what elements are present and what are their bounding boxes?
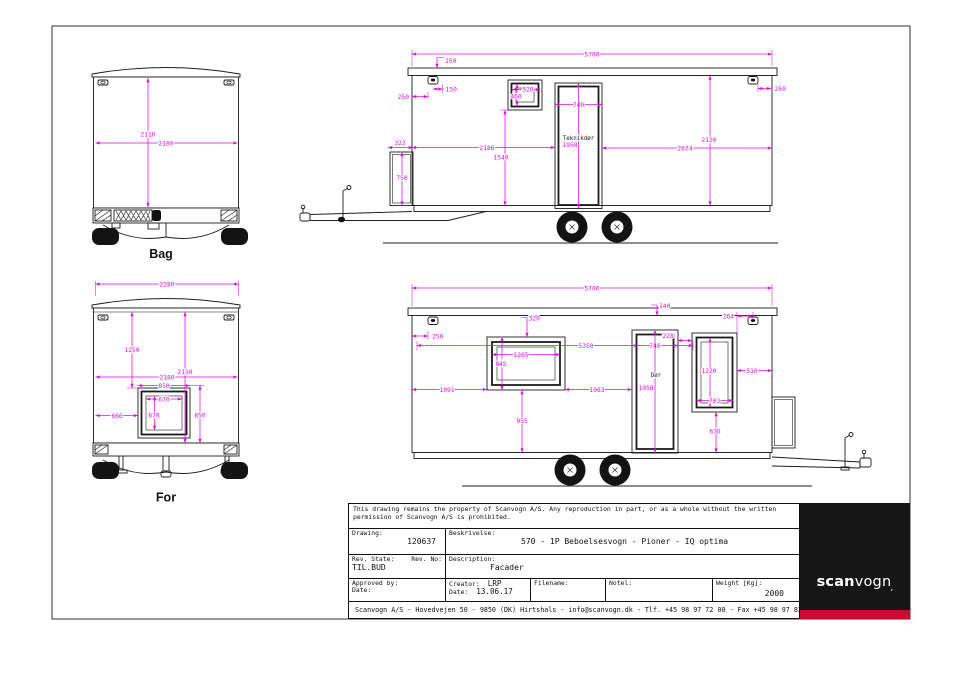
dim-sb-320: 320 <box>529 316 541 323</box>
bag-socket <box>152 210 161 221</box>
dim-st-2186: 2186 <box>479 145 494 152</box>
view-bag: 2110 2180 Bag <box>92 68 248 262</box>
drawing-number: 120637 <box>352 537 442 546</box>
dim-front-850h: 850 <box>194 413 206 420</box>
dim-sb-1063: 1063 <box>589 387 604 394</box>
dim-sb-845: 845 <box>495 361 507 368</box>
front-wheel-right <box>221 462 248 479</box>
beskrivelse-label: Beskrivelse: <box>449 530 796 537</box>
bag-step <box>148 223 159 229</box>
dim-sb-703: 703 <box>709 398 721 405</box>
scanvogn-logo: scanvogn‚ <box>800 503 910 619</box>
front-bumper <box>93 443 239 456</box>
note-cell: Notel: <box>606 579 713 601</box>
st-coupling <box>300 213 310 221</box>
creator-cell: Creator: LRP Date: 13.06.17 <box>446 579 531 601</box>
dim-sb-1091: 1091 <box>439 387 454 394</box>
sb-drawbar <box>772 457 860 468</box>
filename-cell: Filename: <box>531 579 606 601</box>
logo-part-vogn: vogn <box>855 574 892 590</box>
creator-label: Creator: <box>449 580 480 588</box>
title-block: This drawing remains the property of Sca… <box>348 503 800 619</box>
creator-date-label: Date: <box>449 588 468 596</box>
dim-front-2110: 2110 <box>177 369 192 376</box>
front-mudguards <box>103 460 229 474</box>
dim-front-670w: 670 <box>158 397 170 404</box>
rev-state-label: Rev. State: <box>352 556 394 563</box>
dim-front-overall: 2280 <box>159 282 174 289</box>
dim-sb-250: 250 <box>432 334 444 341</box>
dim-st-750: 750 <box>396 175 408 182</box>
logo-red-bar <box>800 610 910 619</box>
sb-drawbar-box <box>772 397 795 448</box>
logo-part-scan: scan <box>817 574 855 590</box>
description-value: Facader <box>490 563 796 572</box>
dim-sb-955: 955 <box>516 418 528 425</box>
weight-cell: Weight [Kg]: 2000 <box>713 579 799 601</box>
dim-st-250-front: 250 <box>398 94 410 101</box>
approved-cell: Approved by: Date: <box>349 579 446 601</box>
dim-st-250-rear: 250 <box>775 86 787 93</box>
dim-sb-1220: 1220 <box>701 368 716 375</box>
view-side-bottom: 5700 140 264 <box>408 284 871 486</box>
rev-state-value: TIL.BUD <box>352 563 442 572</box>
dim-st-window-h: 460 <box>510 94 522 101</box>
logo-tail-mark: ‚ <box>890 583 893 593</box>
dim-sb-228: 228 <box>662 333 674 340</box>
dim-sb-636: 636 <box>709 429 721 436</box>
dim-sb-1265: 1265 <box>513 352 528 359</box>
dim-sb-5700: 5700 <box>584 286 599 293</box>
filename-label: Filename: <box>534 580 602 587</box>
weight-label: Weight [Kg]: <box>716 580 796 587</box>
dim-st-322: 322 <box>394 140 406 147</box>
view-front: 2280 1250 2110 2180 850 6 <box>92 281 248 505</box>
dim-sb-510: 510 <box>746 368 758 375</box>
scanvogn-wordmark: scanvogn‚ <box>800 574 910 593</box>
front-view-label: For <box>156 491 176 505</box>
dim-st-window-w: 520 <box>522 87 534 94</box>
dim-front-1250: 1250 <box>124 347 139 354</box>
rev-no-label: Rev. No: <box>411 556 442 563</box>
bag-wheel-right <box>221 228 248 245</box>
dim-sb-140: 140 <box>659 303 671 310</box>
dim-st-door-h: 1958 <box>562 142 577 149</box>
dim-sb-264: 264 <box>723 314 735 321</box>
dim-front-2180: 2180 <box>159 375 174 382</box>
dim-front-850w: 850 <box>158 383 170 390</box>
drawing-label: Drawing: <box>352 530 442 537</box>
company-footer: Scanvogn A/S - Hovedvejen 50 - 9850 (DK)… <box>349 606 814 614</box>
dim-front-670h: 670 <box>148 413 160 420</box>
dim-st-150-lamp: 150 <box>446 87 458 94</box>
dim-bag-height: 2110 <box>140 132 155 139</box>
beskrivelse-value: 570 - 1P Beboelsesvogn - Pioner - IQ opt… <box>521 537 796 546</box>
drawing-sheet: 2110 2180 Bag 2280 1250 <box>0 0 960 678</box>
description-cell: Description: Facader <box>446 555 799 578</box>
dim-st-2674: 2674 <box>677 146 692 153</box>
bag-roof <box>92 68 240 78</box>
dim-sb-5350: 5350 <box>578 343 593 350</box>
front-wheel-left <box>92 462 119 479</box>
view-side-top: 5700 150 150 250 <box>300 50 786 243</box>
approved-date-label: Date: <box>352 587 442 594</box>
description-label: Description: <box>449 556 796 563</box>
dim-st-1540: 1540 <box>493 155 508 162</box>
front-roof <box>92 299 240 309</box>
front-coupling <box>161 471 171 477</box>
sb-chassis <box>414 453 770 459</box>
note-label: Notel: <box>609 580 709 587</box>
dim-st-5700: 5700 <box>584 52 599 59</box>
dim-st-150-roof: 150 <box>445 58 457 65</box>
sb-coupling <box>860 458 871 467</box>
rev-state-cell: Rev. State: Rev. No: TIL.BUD <box>349 555 446 578</box>
dim-st-2120: 2120 <box>701 137 716 144</box>
disclaimer-line2: permission of Scanvogn A/S is prohibited… <box>353 513 511 521</box>
dim-sb-door-h: 1958 <box>638 385 653 392</box>
sb-door-label: Dør <box>651 373 662 379</box>
st-drawbar <box>310 212 486 221</box>
creator-date-value: 13.06.17 <box>476 588 513 596</box>
bag-wheel-left <box>92 228 119 245</box>
beskrivelse-cell: Beskrivelse: 570 - 1P Beboelsesvogn - Pi… <box>446 529 799 554</box>
drawing-number-cell: Drawing: 120637 <box>349 529 446 554</box>
st-roof <box>408 68 777 76</box>
weight-value: 2000 <box>716 589 796 598</box>
bag-view-label: Bag <box>149 247 173 261</box>
disclaimer: This drawing remains the property of Sca… <box>349 504 799 528</box>
dim-bag-width: 2180 <box>158 141 173 148</box>
dim-front-666: 666 <box>111 413 123 420</box>
